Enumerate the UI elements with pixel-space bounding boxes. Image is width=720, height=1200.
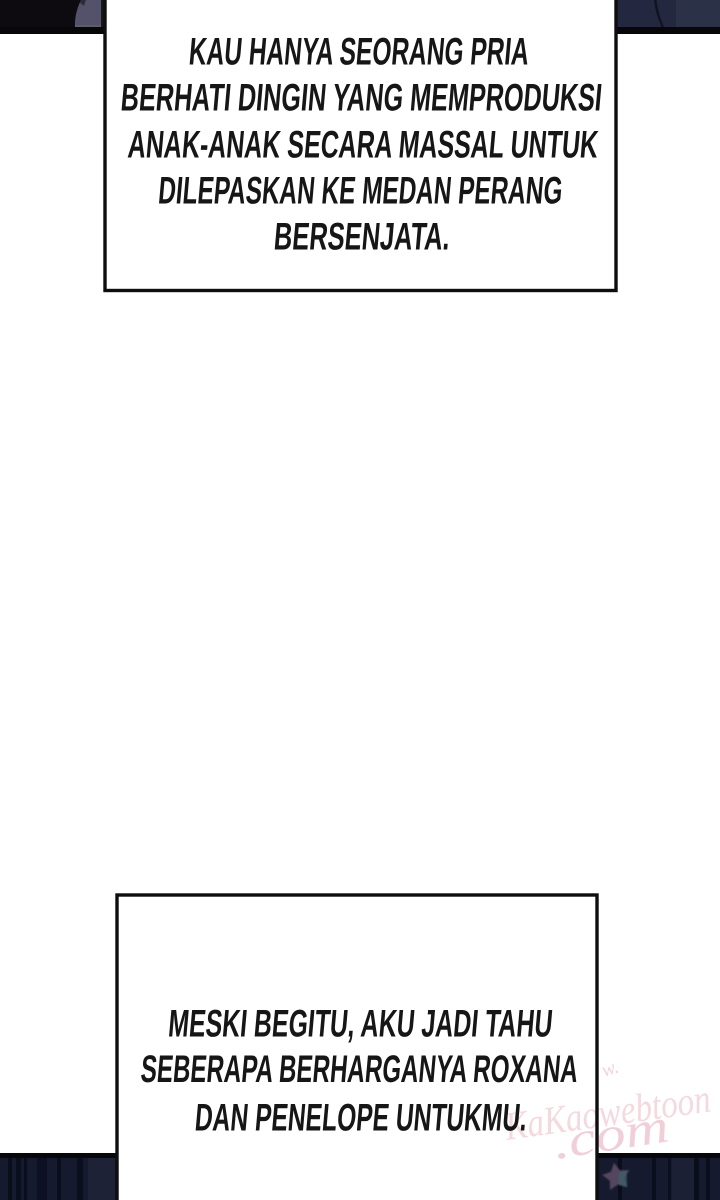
svg-text:MESKI BEGITU, AKU JADI TAHU: MESKI BEGITU, AKU JADI TAHU [167, 1003, 555, 1046]
svg-text:BERHATI DINGIN YANG MEMPRODUKS: BERHATI DINGIN YANG MEMPRODUKSI [119, 76, 604, 119]
svg-text:BERSENJATA.: BERSENJATA. [272, 216, 452, 259]
svg-text:KAU HANYA SEORANG PRIA: KAU HANYA SEORANG PRIA [187, 31, 531, 74]
svg-text:DAN PENELOPE UNTUKMU.: DAN PENELOPE UNTUKMU. [193, 1097, 529, 1140]
svg-text:ANAK-ANAK SECARA MASSAL UNTUK: ANAK-ANAK SECARA MASSAL UNTUK [126, 124, 600, 167]
svg-text:SEBERAPA BERHARGANYA ROXANA: SEBERAPA BERHARGANYA ROXANA [139, 1048, 580, 1091]
svg-text:DILEPASKAN KE MEDAN PERANG: DILEPASKAN KE MEDAN PERANG [157, 170, 565, 213]
